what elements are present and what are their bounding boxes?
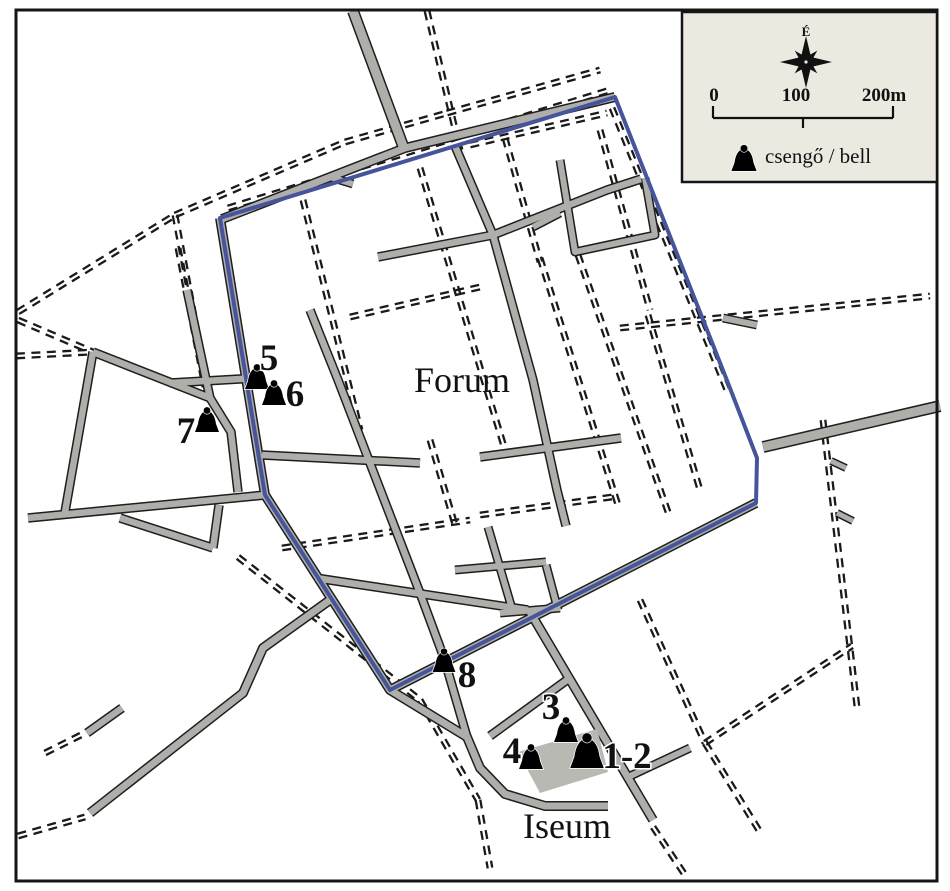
bell-label-5: 5 xyxy=(260,338,279,379)
bell-label-1-2: 1-2 xyxy=(602,736,651,777)
scale-tick-100: 100 xyxy=(782,85,811,106)
map-canvas: Forum Iseum 1-2 3 4 5 6 7 8 É 0 100 200m… xyxy=(0,0,950,891)
bell-label-8: 8 xyxy=(458,655,477,696)
savaria-map: Forum Iseum 1-2 3 4 5 6 7 8 É 0 100 200m… xyxy=(0,0,950,891)
bell-label-3: 3 xyxy=(542,687,561,728)
bell-label-6: 6 xyxy=(286,374,305,415)
iseum-label: Iseum xyxy=(523,806,611,846)
scale-tick-0: 0 xyxy=(709,85,719,106)
north-label: É xyxy=(802,24,811,39)
bell-legend-label: csengő / bell xyxy=(765,144,871,168)
forum-label: Forum xyxy=(414,360,510,400)
legend-box: É 0 100 200m csengő / bell xyxy=(682,12,937,182)
scale-tick-200m: 200m xyxy=(862,85,907,106)
bell-label-7: 7 xyxy=(177,411,196,452)
bell-label-4: 4 xyxy=(503,731,522,772)
